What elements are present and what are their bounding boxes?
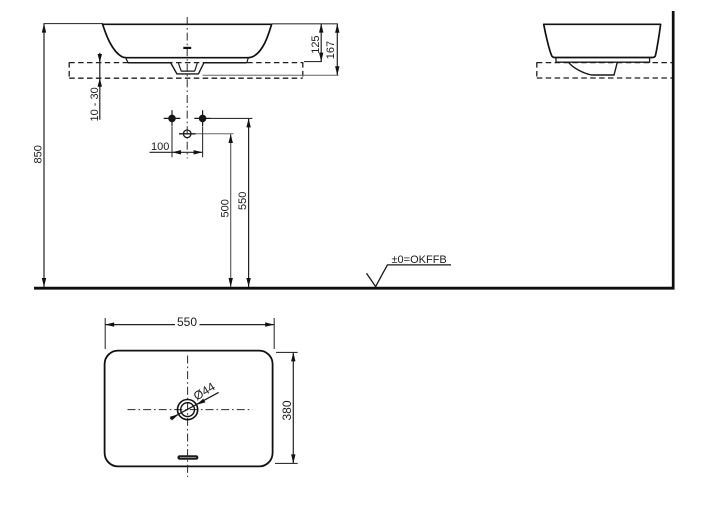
- svg-text:500: 500: [219, 199, 231, 217]
- svg-text:125: 125: [310, 35, 322, 53]
- svg-text:850: 850: [33, 145, 45, 163]
- svg-text:380: 380: [280, 400, 294, 420]
- svg-text:100: 100: [151, 141, 169, 153]
- svg-text:±0=OKFFB: ±0=OKFFB: [392, 254, 447, 266]
- svg-text:10 - 30: 10 - 30: [89, 87, 101, 121]
- svg-text:550: 550: [237, 192, 249, 210]
- svg-text:167: 167: [325, 41, 337, 59]
- svg-text:550: 550: [177, 315, 197, 329]
